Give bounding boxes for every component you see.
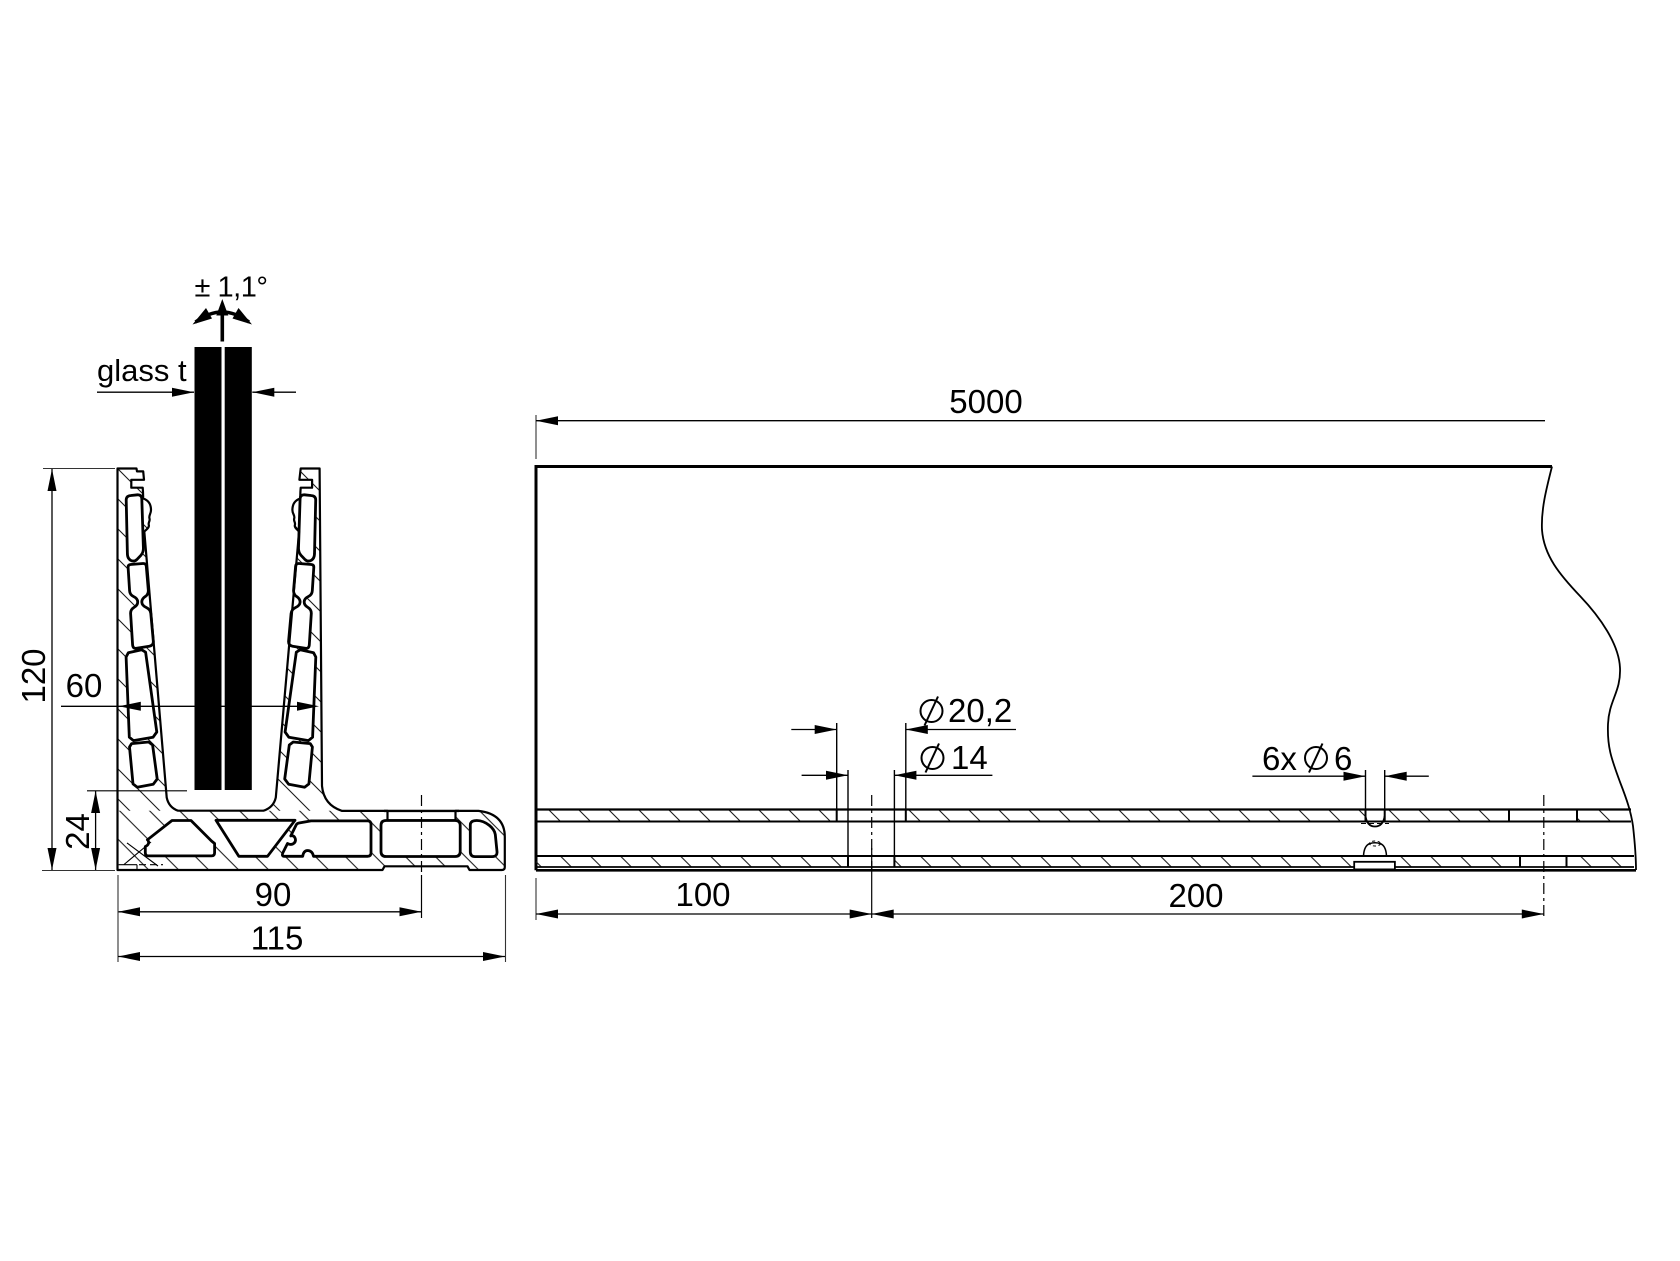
svg-text:90: 90: [255, 876, 292, 913]
svg-text:100: 100: [675, 876, 730, 913]
svg-text:120: 120: [15, 648, 52, 703]
svg-text:6: 6: [1334, 740, 1352, 777]
svg-text:200: 200: [1168, 877, 1223, 914]
svg-text:5000: 5000: [949, 383, 1022, 420]
svg-text:14: 14: [951, 739, 988, 776]
svg-text:glass t: glass t: [97, 353, 187, 388]
svg-text:6x: 6x: [1262, 740, 1297, 777]
svg-text:± 1,1°: ± 1,1°: [195, 272, 268, 304]
svg-text:20,2: 20,2: [948, 692, 1012, 729]
svg-text:115: 115: [251, 920, 304, 957]
svg-text:60: 60: [66, 667, 103, 704]
svg-text:24: 24: [59, 813, 96, 850]
